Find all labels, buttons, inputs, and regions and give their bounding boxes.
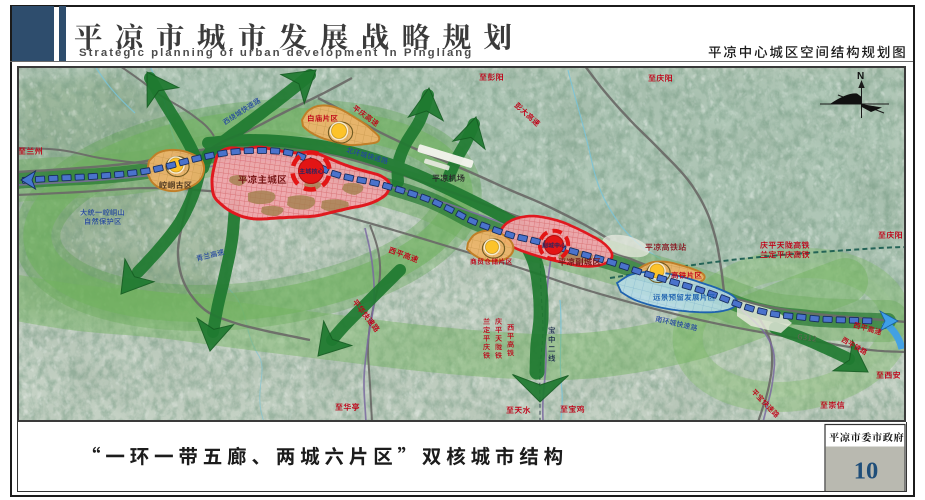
svg-text:10: 10: [854, 458, 879, 485]
svg-text:N: N: [857, 71, 864, 82]
